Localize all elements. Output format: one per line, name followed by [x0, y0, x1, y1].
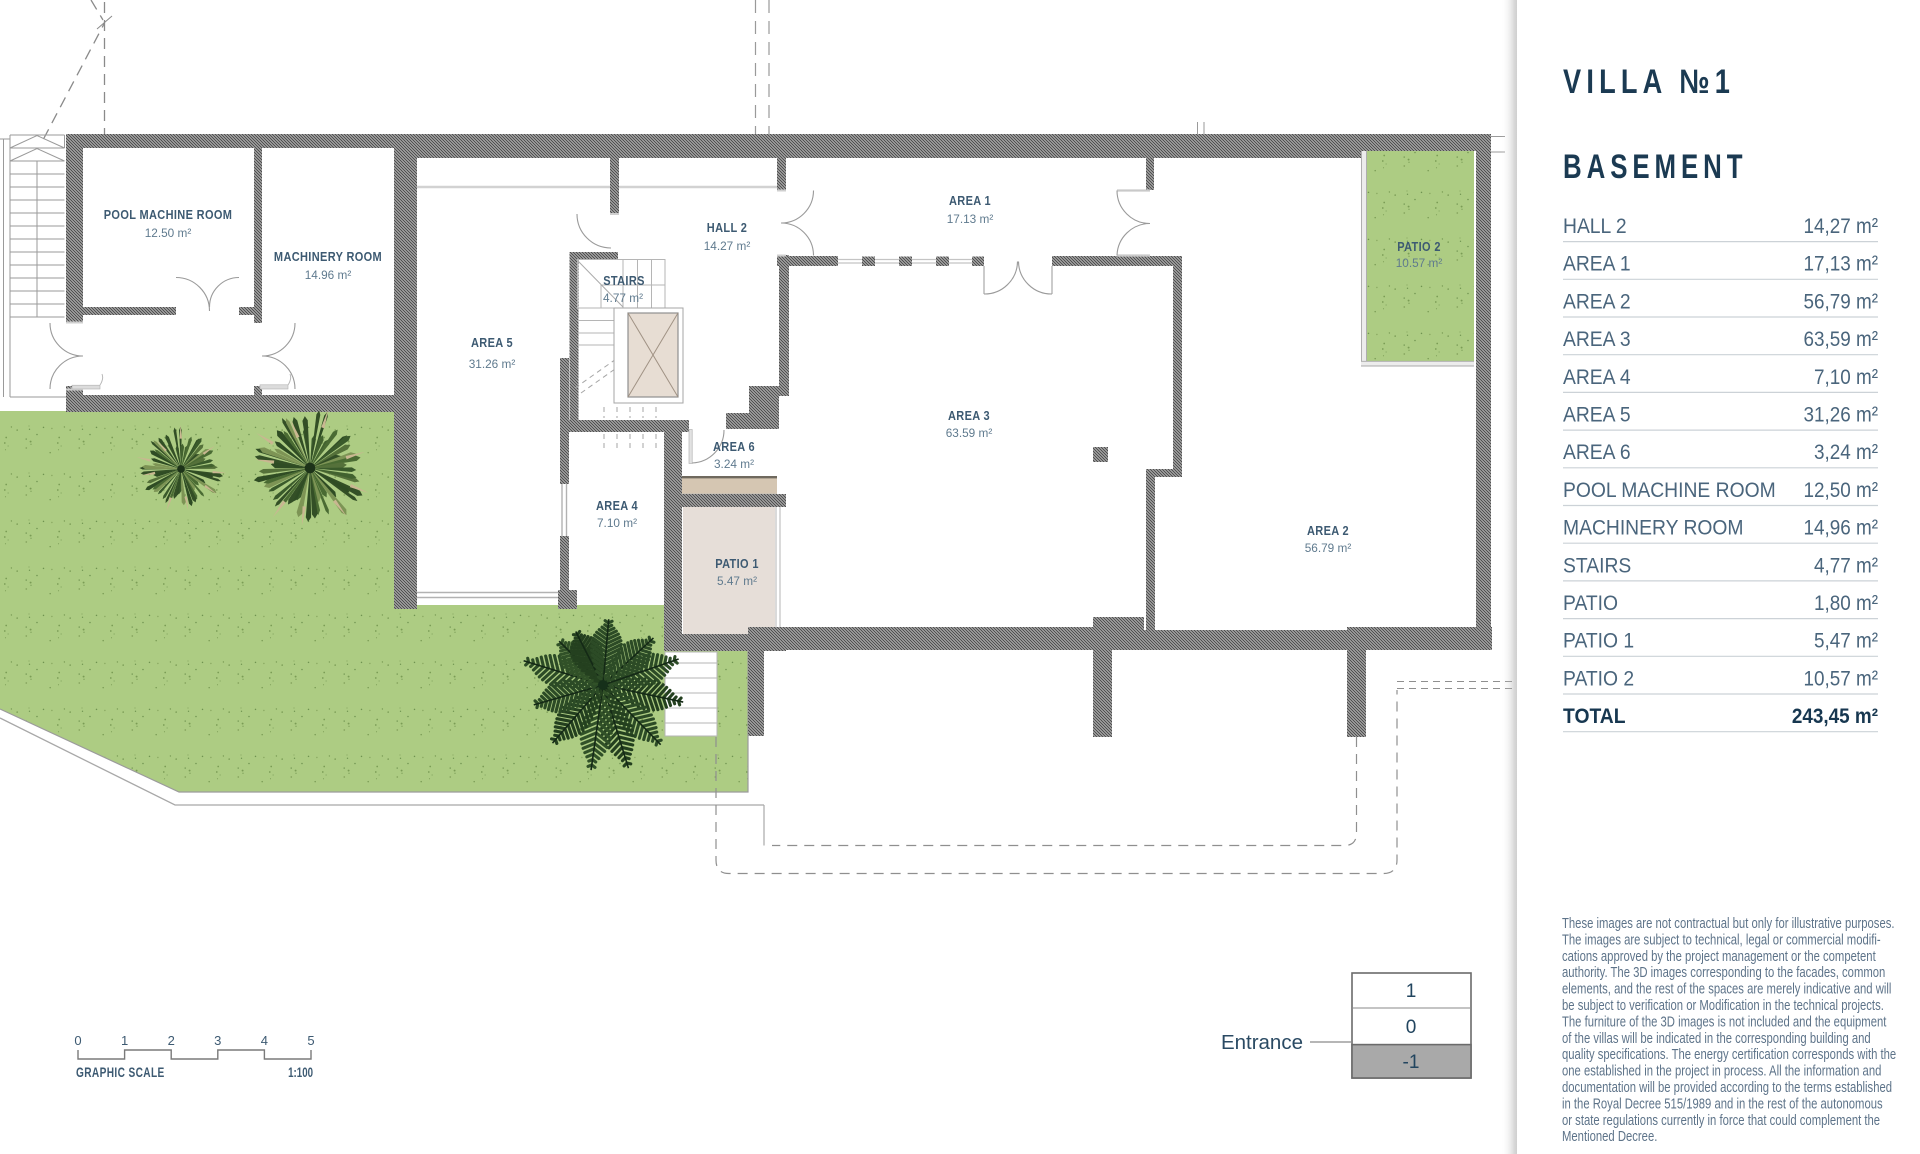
svg-text:PATIO 2: PATIO 2	[1397, 240, 1441, 254]
svg-text:7,10 m²: 7,10 m²	[1814, 366, 1878, 389]
svg-text:10,57 m²: 10,57 m²	[1803, 668, 1878, 691]
svg-text:AREA 3: AREA 3	[948, 409, 990, 423]
svg-text:14.96 m²: 14.96 m²	[305, 268, 352, 282]
svg-text:Mentioned Decree.: Mentioned Decree.	[1562, 1128, 1657, 1145]
svg-text:5: 5	[307, 1033, 314, 1048]
svg-text:GRAPHIC SCALE: GRAPHIC SCALE	[76, 1065, 165, 1081]
svg-text:HALL 2: HALL 2	[1563, 215, 1627, 238]
svg-text:VILLA №1: VILLA №1	[1563, 62, 1735, 101]
svg-text:be subject to verification or: be subject to verification or Modificati…	[1562, 997, 1884, 1014]
svg-text:PATIO 2: PATIO 2	[1563, 668, 1634, 691]
svg-text:PATIO 1: PATIO 1	[1563, 630, 1634, 653]
svg-text:PATIO: PATIO	[1563, 592, 1618, 615]
svg-text:4,77 m²: 4,77 m²	[1814, 554, 1878, 577]
svg-text:HALL 2: HALL 2	[707, 221, 747, 235]
svg-text:authority. The 3D images corre: authority. The 3D images corresponding t…	[1562, 964, 1885, 981]
svg-text:cations approved by the projec: cations approved by the project manageme…	[1562, 947, 1876, 964]
svg-text:of the villas will be indicate: of the villas will be indicated in the c…	[1562, 1029, 1871, 1046]
svg-text:Entrance: Entrance	[1221, 1031, 1303, 1054]
svg-text:4: 4	[261, 1033, 268, 1048]
svg-text:14,96 m²: 14,96 m²	[1803, 517, 1878, 540]
svg-text:AREA 3: AREA 3	[1563, 328, 1631, 351]
svg-text:AREA 6: AREA 6	[1563, 442, 1631, 465]
svg-text:63,59 m²: 63,59 m²	[1803, 328, 1878, 351]
svg-text:10.57 m²: 10.57 m²	[1396, 256, 1443, 270]
svg-text:56,79 m²: 56,79 m²	[1803, 291, 1878, 314]
svg-text:12.50 m²: 12.50 m²	[145, 226, 192, 240]
svg-text:4.77 m²: 4.77 m²	[603, 291, 643, 305]
svg-text:0: 0	[1406, 1017, 1417, 1038]
svg-text:These images are not contractu: These images are not contractual but onl…	[1562, 915, 1895, 932]
svg-text:AREA 5: AREA 5	[1563, 404, 1631, 427]
svg-text:elements, and the rest of the: elements, and the rest of the spaces are…	[1562, 980, 1891, 997]
svg-text:AREA 4: AREA 4	[596, 499, 638, 513]
svg-text:3: 3	[214, 1033, 221, 1048]
svg-text:0: 0	[74, 1033, 81, 1048]
svg-text:243,45 m²: 243,45 m²	[1792, 705, 1878, 728]
svg-text:1: 1	[121, 1033, 128, 1048]
svg-text:in the Royal Decree 515/1989 a: in the Royal Decree 515/1989 and in the …	[1562, 1095, 1883, 1112]
svg-text:-1: -1	[1403, 1052, 1420, 1073]
svg-text:17.13 m²: 17.13 m²	[947, 212, 994, 226]
svg-text:17,13 m²: 17,13 m²	[1803, 253, 1878, 276]
svg-text:14.27 m²: 14.27 m²	[704, 239, 751, 253]
svg-text:MACHINERY ROOM: MACHINERY ROOM	[274, 250, 382, 264]
svg-text:MACHINERY ROOM: MACHINERY ROOM	[1563, 517, 1744, 540]
svg-text:3,24 m²: 3,24 m²	[1814, 441, 1878, 464]
svg-text:31.26 m²: 31.26 m²	[469, 357, 516, 371]
svg-text:56.79 m²: 56.79 m²	[1305, 541, 1352, 555]
svg-text:STAIRS: STAIRS	[603, 274, 645, 288]
svg-text:1:100: 1:100	[288, 1066, 313, 1081]
svg-text:31,26 m²: 31,26 m²	[1803, 404, 1878, 427]
svg-text:3.24 m²: 3.24 m²	[714, 457, 754, 471]
svg-text:or state regulations currently: or state regulations currently in force …	[1562, 1111, 1880, 1128]
svg-text:documentation will be provided: documentation will be provided according…	[1562, 1079, 1892, 1096]
svg-text:63.59 m²: 63.59 m²	[946, 426, 993, 440]
svg-text:POOL MACHINE ROOM: POOL MACHINE ROOM	[104, 208, 233, 222]
svg-text:The furniture of the 3D images: The furniture of the 3D images is not in…	[1562, 1013, 1887, 1030]
svg-text:1: 1	[1406, 981, 1417, 1002]
svg-text:7.10 m²: 7.10 m²	[597, 516, 637, 530]
svg-text:14,27 m²: 14,27 m²	[1803, 215, 1878, 238]
svg-text:STAIRS: STAIRS	[1563, 555, 1631, 578]
svg-text:AREA 1: AREA 1	[949, 194, 991, 208]
svg-text:AREA 2: AREA 2	[1307, 524, 1349, 538]
svg-text:PATIO 1: PATIO 1	[715, 557, 759, 571]
svg-text:TOTAL: TOTAL	[1563, 705, 1626, 728]
svg-text:AREA 1: AREA 1	[1563, 253, 1631, 276]
svg-text:one established in the project: one established in the project in proces…	[1562, 1062, 1881, 1079]
svg-text:5,47 m²: 5,47 m²	[1814, 630, 1878, 653]
svg-text:2: 2	[168, 1033, 175, 1048]
svg-text:AREA 6: AREA 6	[713, 440, 755, 454]
svg-text:The images are subject to tech: The images are subject to technical, leg…	[1562, 931, 1881, 948]
svg-text:BASEMENT: BASEMENT	[1563, 149, 1747, 186]
svg-text:12,50 m²: 12,50 m²	[1803, 479, 1878, 502]
svg-text:quality specifications. The en: quality specifications. The energy certi…	[1562, 1046, 1896, 1063]
svg-text:1,80 m²: 1,80 m²	[1814, 592, 1878, 615]
svg-text:AREA 5: AREA 5	[471, 336, 513, 350]
svg-text:POOL MACHINE ROOM: POOL MACHINE ROOM	[1563, 479, 1776, 502]
svg-text:5.47 m²: 5.47 m²	[717, 574, 757, 588]
svg-text:AREA 4: AREA 4	[1563, 366, 1631, 389]
svg-text:AREA 2: AREA 2	[1563, 291, 1631, 314]
